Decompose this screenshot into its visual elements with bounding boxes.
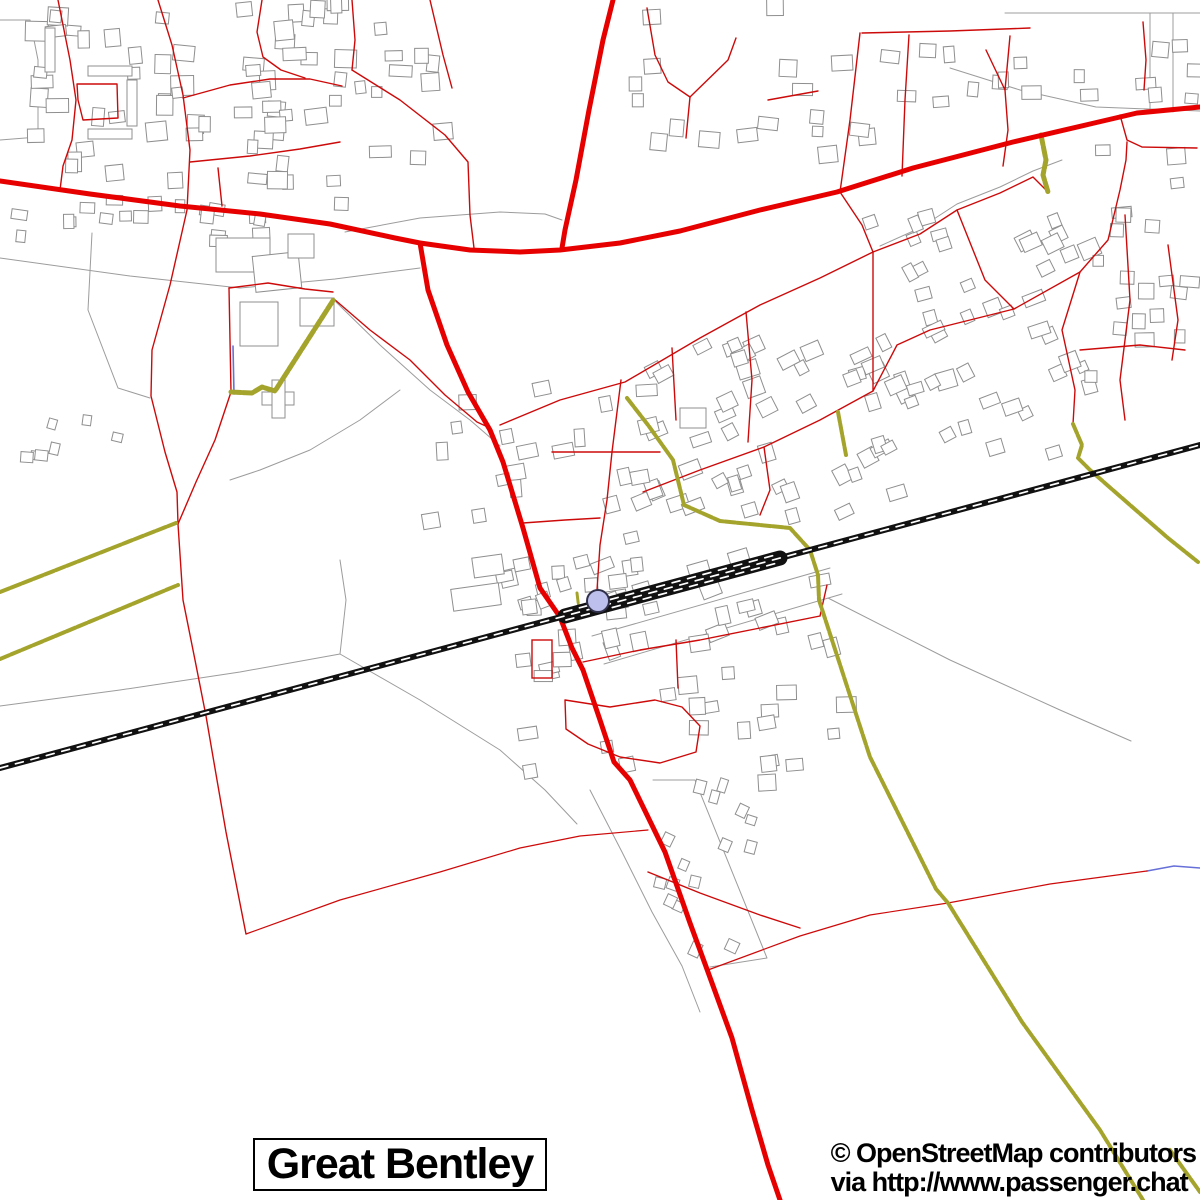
building — [1113, 322, 1127, 336]
building — [385, 51, 402, 61]
building — [108, 111, 125, 124]
building — [517, 726, 538, 741]
building — [247, 140, 258, 154]
building — [827, 728, 839, 739]
building — [669, 119, 684, 137]
building — [831, 55, 853, 71]
building — [327, 175, 341, 186]
building — [553, 652, 571, 667]
building — [155, 54, 171, 73]
building — [767, 0, 784, 16]
map-viewport: Great Bentley © OpenStreetMap contributo… — [0, 0, 1200, 1200]
building — [919, 43, 936, 57]
building — [35, 450, 49, 462]
building — [65, 159, 77, 173]
building-large — [88, 66, 132, 76]
map-title-box: Great Bentley — [253, 1138, 547, 1191]
attribution: © OpenStreetMap contributors via http://… — [831, 1139, 1196, 1197]
building — [532, 380, 551, 397]
building — [369, 146, 391, 158]
building — [677, 676, 698, 695]
building-large — [127, 80, 137, 126]
building — [1185, 93, 1199, 104]
building — [1180, 276, 1200, 288]
building — [167, 172, 182, 188]
building — [91, 107, 104, 126]
building — [16, 230, 26, 243]
building — [82, 415, 92, 426]
building — [1132, 314, 1145, 329]
building — [849, 122, 869, 137]
building — [629, 77, 642, 91]
building — [636, 384, 658, 397]
building — [20, 452, 33, 463]
building — [433, 122, 454, 140]
building — [1138, 283, 1154, 299]
building — [689, 875, 701, 888]
building — [760, 755, 777, 772]
building — [80, 202, 95, 213]
building — [248, 173, 268, 185]
building — [27, 129, 44, 143]
building — [534, 671, 552, 682]
building — [199, 117, 211, 132]
attribution-line2: via http://www.passenger.chat — [831, 1168, 1196, 1197]
building — [421, 512, 440, 530]
building — [472, 508, 487, 523]
building — [1080, 89, 1098, 101]
building — [650, 133, 668, 152]
building — [967, 82, 979, 97]
building — [78, 31, 90, 48]
building — [330, 0, 341, 13]
building — [1152, 41, 1170, 58]
building — [374, 22, 387, 35]
building — [120, 211, 132, 221]
building — [1093, 255, 1104, 266]
building — [330, 95, 342, 106]
building-large — [472, 554, 504, 578]
building — [1172, 39, 1187, 52]
building-large — [88, 129, 132, 139]
building — [1120, 271, 1134, 284]
building — [632, 94, 643, 107]
building — [758, 774, 776, 791]
building — [599, 396, 613, 413]
building — [265, 117, 286, 134]
building — [643, 9, 661, 25]
building — [608, 573, 627, 589]
building — [415, 48, 429, 63]
building — [1022, 86, 1042, 100]
building — [660, 688, 676, 702]
building — [410, 151, 426, 165]
building — [276, 155, 289, 172]
building — [513, 557, 531, 572]
building — [521, 599, 537, 615]
building — [111, 432, 123, 443]
building — [304, 107, 328, 125]
building — [1148, 87, 1162, 103]
building — [574, 429, 585, 447]
building — [172, 44, 195, 61]
building — [1187, 64, 1200, 77]
building — [943, 46, 955, 63]
building — [818, 145, 839, 163]
building — [523, 764, 538, 780]
building — [334, 197, 348, 210]
building — [451, 421, 463, 434]
stream — [233, 346, 234, 394]
building — [1116, 208, 1131, 223]
building — [246, 64, 261, 76]
building — [436, 442, 448, 460]
building — [810, 110, 824, 125]
building — [236, 2, 253, 18]
map-title: Great Bentley — [267, 1140, 534, 1189]
attribution-line1: © OpenStreetMap contributors — [831, 1139, 1196, 1168]
building — [500, 429, 514, 445]
building — [630, 469, 650, 485]
building — [134, 211, 149, 224]
station-marker — [587, 590, 609, 612]
building — [786, 758, 804, 771]
building — [1170, 286, 1187, 300]
building — [283, 47, 307, 60]
building — [757, 116, 778, 130]
building — [552, 566, 565, 580]
building — [689, 697, 706, 715]
building-large — [45, 28, 55, 72]
building-large — [680, 408, 706, 428]
building — [128, 47, 142, 65]
building-large — [240, 302, 278, 346]
building — [630, 557, 643, 572]
building — [779, 59, 797, 77]
building — [421, 73, 440, 92]
building — [49, 442, 60, 455]
building — [30, 88, 48, 108]
building — [252, 81, 272, 99]
building — [757, 715, 776, 731]
building — [63, 214, 74, 228]
building — [1085, 371, 1097, 383]
building — [722, 667, 735, 680]
map-canvas — [0, 0, 1200, 1200]
building — [234, 107, 252, 118]
building — [156, 95, 173, 115]
building — [99, 213, 113, 225]
building — [1095, 145, 1110, 156]
building — [812, 126, 823, 137]
building — [689, 634, 711, 652]
building — [698, 131, 720, 149]
building — [104, 28, 121, 47]
building — [1150, 309, 1164, 323]
building — [737, 722, 750, 739]
building — [880, 50, 900, 64]
building — [1145, 220, 1160, 234]
building — [808, 633, 824, 650]
building-large — [288, 234, 314, 258]
building — [46, 98, 69, 112]
building — [1014, 57, 1027, 69]
building — [897, 90, 916, 102]
building — [1170, 177, 1184, 188]
building — [267, 171, 287, 189]
building — [145, 121, 167, 142]
building — [263, 101, 281, 113]
building — [389, 65, 412, 77]
building — [105, 164, 124, 181]
building — [777, 685, 797, 700]
building — [1167, 147, 1186, 165]
building — [1074, 70, 1084, 83]
building — [933, 96, 949, 108]
building — [274, 20, 295, 41]
building — [515, 653, 531, 667]
building — [310, 0, 325, 18]
building — [737, 127, 759, 142]
building — [355, 81, 367, 94]
building — [11, 209, 28, 221]
